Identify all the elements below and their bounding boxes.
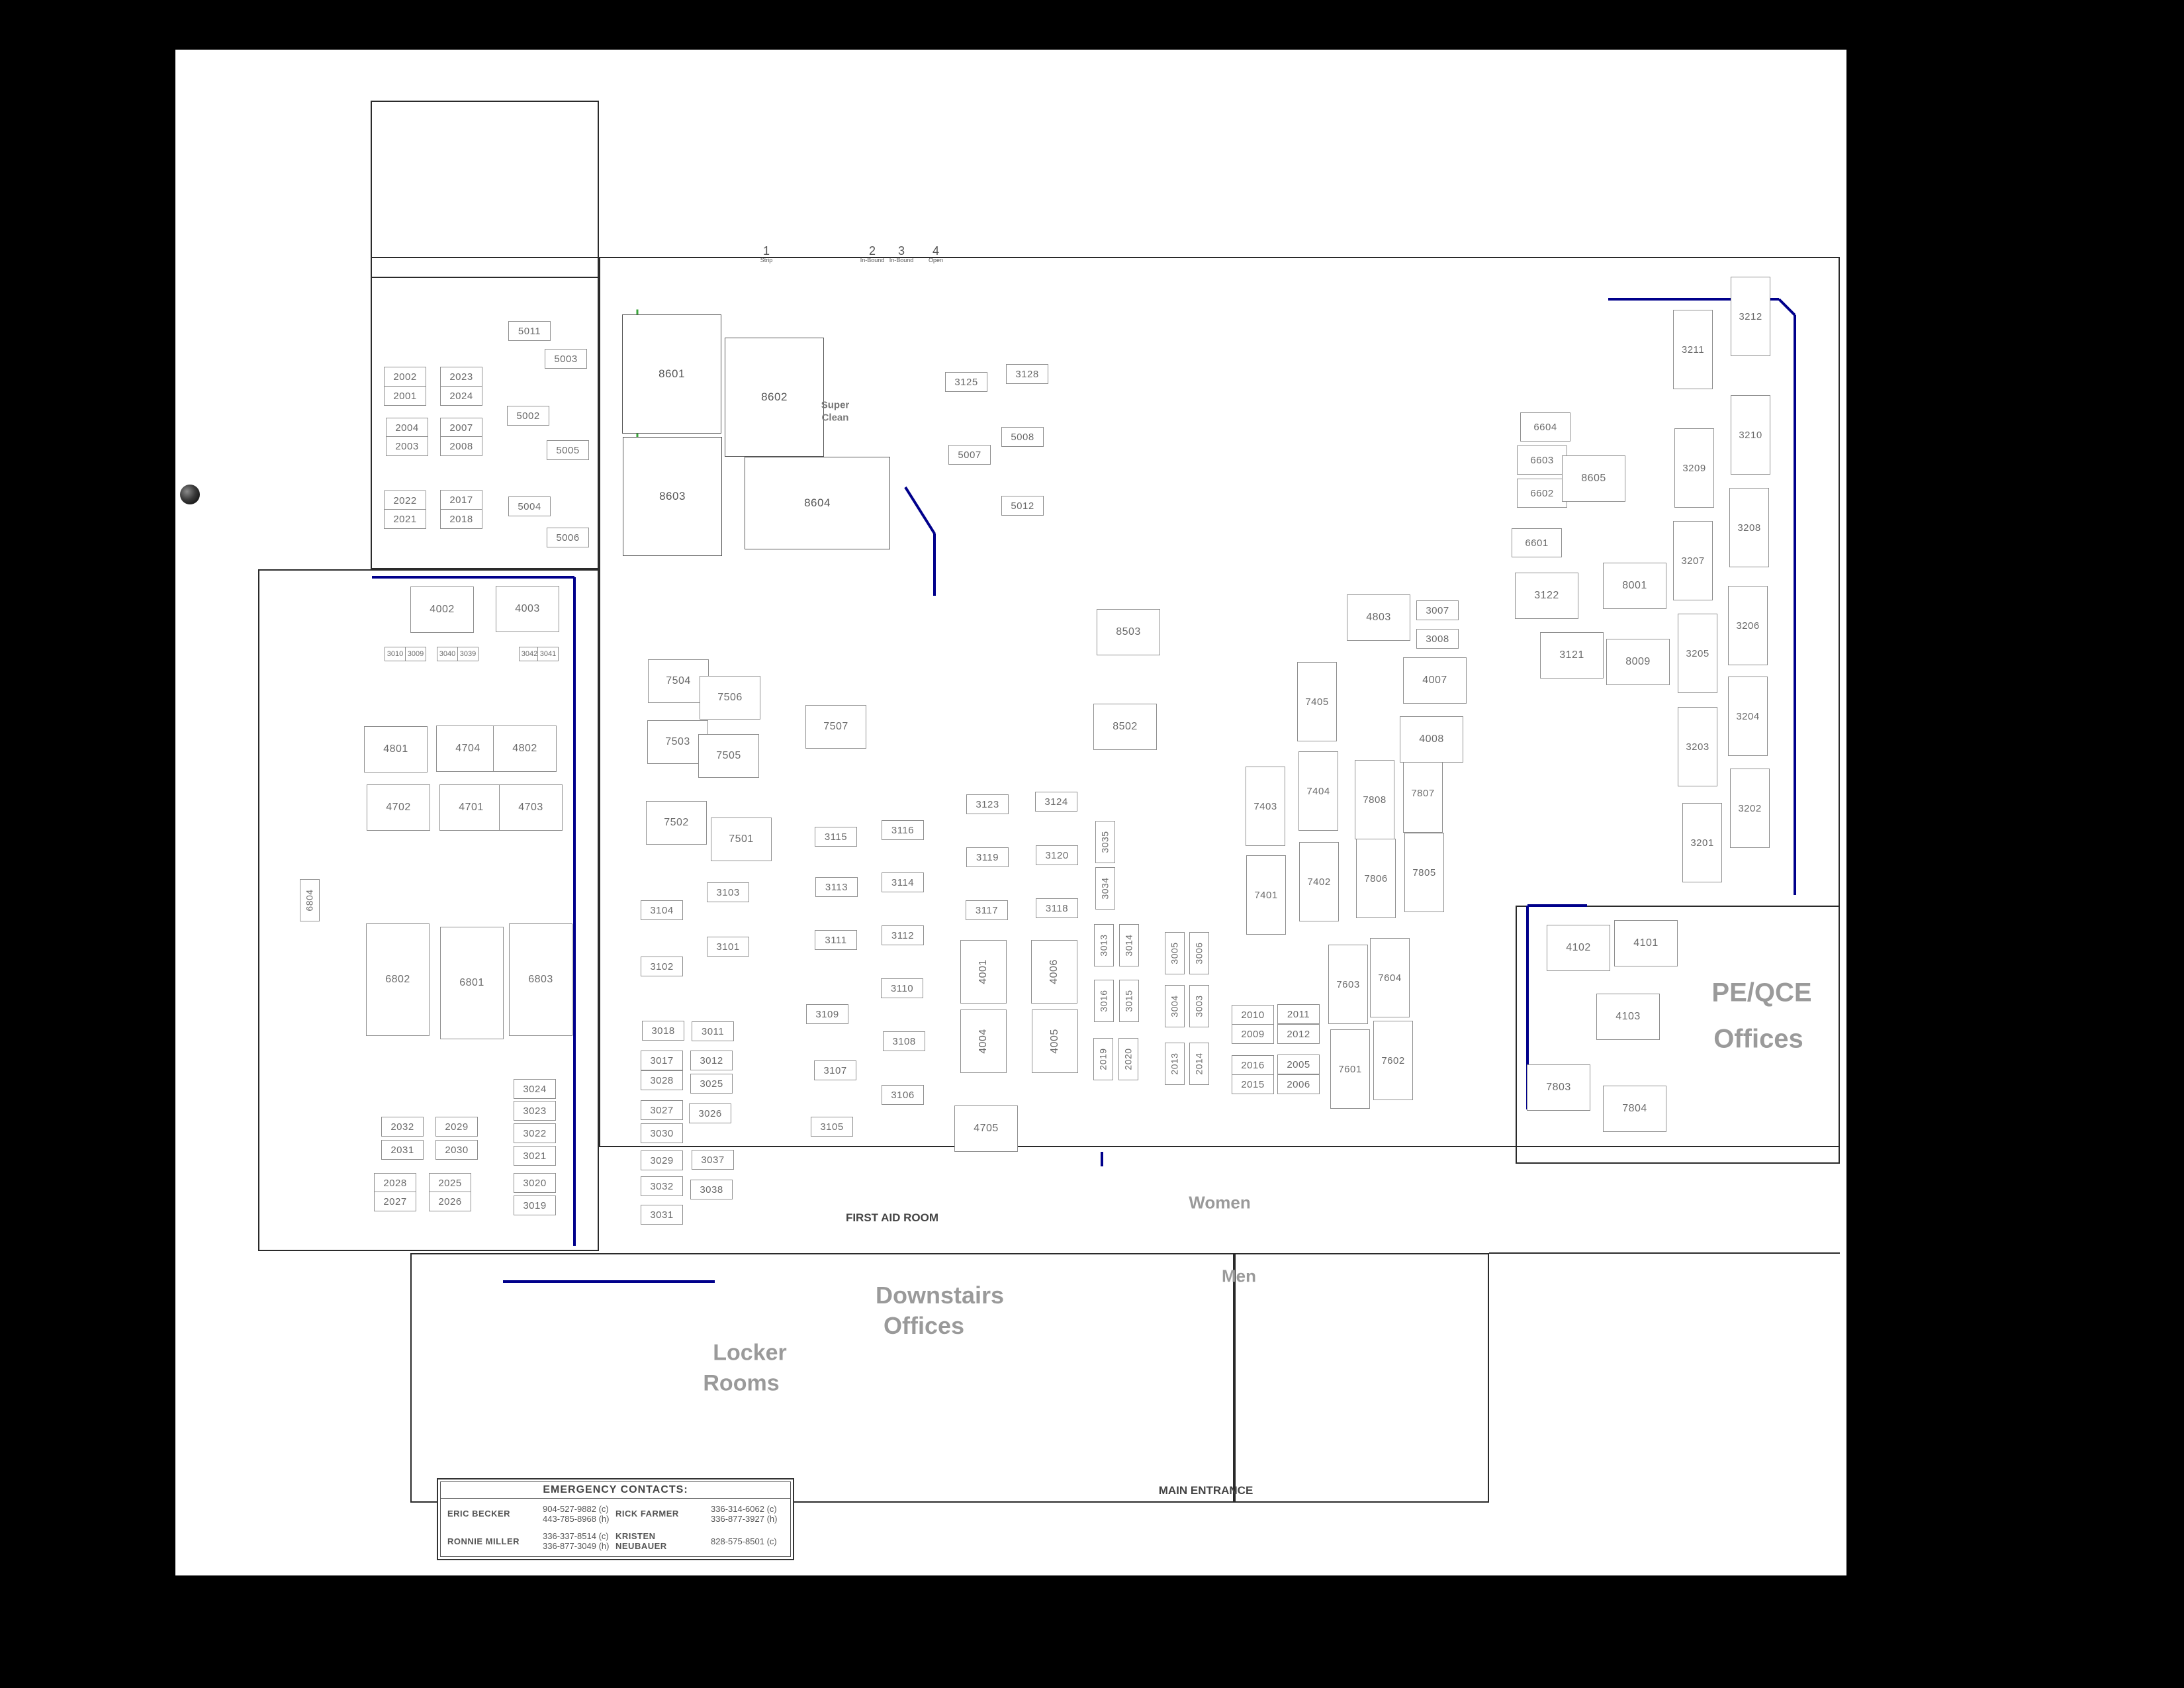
room-number-label: 2004 — [395, 422, 418, 434]
screenshot-root: { "page": { "bg": "#000000", "sheet": {"… — [0, 0, 2184, 1688]
room-3018: 3018 — [642, 1021, 684, 1041]
room-3027: 3027 — [641, 1100, 683, 1120]
wall-segment — [410, 1253, 1234, 1503]
room-2020: 2020 — [1118, 1038, 1138, 1080]
emergency-contacts-grid: ERIC BECKER 904-527-9882 (c) 443-785-896… — [441, 1499, 790, 1556]
room-number-label: 2021 — [393, 514, 416, 525]
emergency-contacts-title: EMERGENCY CONTACTS: — [441, 1482, 790, 1499]
area-label-offices: Offices — [884, 1312, 964, 1340]
room-number-label: 2015 — [1241, 1079, 1264, 1090]
room-number-label: 3012 — [700, 1055, 723, 1066]
dock-label-2: 2In-Bound — [860, 245, 885, 263]
room-number-label: 3121 — [1559, 649, 1584, 661]
room-number-label: 3022 — [523, 1128, 546, 1139]
room-3119: 3119 — [966, 847, 1009, 867]
room-number-label: 3028 — [650, 1075, 673, 1086]
room-3028: 3028 — [641, 1070, 683, 1090]
room-number-label: 7803 — [1546, 1082, 1571, 1094]
room-4008: 4008 — [1400, 716, 1463, 763]
room-number-label: 3128 — [1015, 369, 1038, 380]
room-number-label: 3114 — [891, 877, 914, 888]
room-number-label: 2003 — [395, 441, 418, 452]
room-2018: 2018 — [440, 509, 482, 529]
room-7803: 7803 — [1527, 1064, 1590, 1111]
room-number-label: 3021 — [523, 1150, 546, 1162]
room-3107: 3107 — [814, 1060, 856, 1080]
room-number-label: 2013 — [1169, 1053, 1180, 1074]
room-number-label: 4004 — [978, 1029, 989, 1054]
room-number-label: 3101 — [716, 941, 739, 953]
room-number-label: 4006 — [1048, 959, 1060, 984]
room-number-label: 5004 — [518, 501, 541, 512]
room-number-label: 3027 — [650, 1105, 673, 1116]
room-6604: 6604 — [1520, 412, 1570, 442]
area-label-offices: Offices — [1713, 1025, 1803, 1055]
room-number-label: 3005 — [1169, 942, 1180, 964]
room-number-label: 3034 — [1100, 877, 1111, 899]
room-8604: 8604 — [745, 457, 890, 549]
room-3014: 3014 — [1119, 924, 1139, 966]
room-number-label: 2024 — [449, 391, 473, 402]
room-3209: 3209 — [1674, 428, 1714, 508]
room-3206: 3206 — [1728, 586, 1768, 665]
room-3007: 3007 — [1416, 600, 1459, 620]
room-3012: 3012 — [690, 1051, 733, 1070]
room-number-label: 3206 — [1736, 620, 1759, 632]
blue-accent-line — [1794, 315, 1796, 895]
room-3116: 3116 — [882, 820, 924, 840]
room-number-label: 3208 — [1737, 522, 1760, 534]
room-3106: 3106 — [882, 1085, 924, 1105]
room-3015: 3015 — [1119, 980, 1139, 1022]
room-7602: 7602 — [1373, 1021, 1413, 1100]
room-number-label: 4007 — [1422, 675, 1447, 686]
room-4006: 4006 — [1031, 940, 1077, 1004]
room-number-label: 8503 — [1116, 626, 1141, 638]
room-number-label: 3023 — [523, 1105, 546, 1117]
room-number-label: 7504 — [666, 675, 691, 687]
room-number-label: 2016 — [1241, 1060, 1264, 1071]
room-3023: 3023 — [514, 1101, 556, 1121]
room-3110: 3110 — [881, 978, 923, 998]
room-number-label: 3108 — [892, 1036, 915, 1047]
room-7808: 7808 — [1355, 760, 1394, 839]
room-7805: 7805 — [1404, 833, 1444, 912]
room-2003: 2003 — [386, 436, 428, 456]
room-number-label: 5007 — [958, 449, 981, 461]
room-number-label: 7402 — [1307, 876, 1330, 888]
room-number-label: 2010 — [1241, 1009, 1264, 1021]
room-number-label: 4705 — [974, 1123, 999, 1135]
room-4102: 4102 — [1547, 925, 1610, 971]
room-7401: 7401 — [1246, 855, 1286, 935]
room-number-label: 3119 — [976, 852, 999, 863]
room-number-label: 3120 — [1045, 850, 1068, 861]
blue-accent-line — [1527, 904, 1587, 907]
room-5007: 5007 — [948, 445, 991, 465]
room-6803: 6803 — [509, 923, 572, 1036]
room-6801: 6801 — [440, 927, 504, 1039]
room-2007: 2007 — [440, 418, 482, 438]
room-number-label: 2009 — [1241, 1029, 1264, 1040]
room-number-label: 7404 — [1306, 786, 1330, 797]
room-number-label: 7501 — [729, 833, 754, 845]
wall-segment — [1234, 1253, 1489, 1503]
room-3120: 3120 — [1036, 845, 1078, 865]
room-number-label: 2011 — [1287, 1009, 1310, 1020]
dock-number: 3 — [889, 245, 914, 257]
room-number-label: 7502 — [664, 817, 689, 829]
room-3212: 3212 — [1731, 277, 1770, 356]
room-number-label: 8009 — [1625, 656, 1651, 668]
room-3115: 3115 — [815, 827, 857, 847]
room-number-label: 4803 — [1366, 612, 1391, 624]
room-number-label: 2031 — [390, 1145, 414, 1156]
room-4001: 4001 — [960, 940, 1007, 1004]
room-3037: 3037 — [692, 1150, 734, 1170]
room-number-label: 7807 — [1411, 788, 1434, 799]
area-label-pe-qce: PE/QCE — [1711, 978, 1811, 1008]
room-number-label: 2002 — [393, 371, 416, 383]
room-3211: 3211 — [1673, 310, 1713, 389]
blue-accent-line — [503, 1280, 715, 1283]
room-4002: 4002 — [410, 586, 474, 633]
room-number-label: 2027 — [383, 1196, 406, 1207]
room-number-label: 3104 — [650, 905, 673, 916]
room-number-label: 5003 — [554, 353, 577, 365]
room-number-label: 3042 — [522, 650, 537, 658]
blue-accent-line — [933, 534, 936, 596]
room-number-label: 3029 — [650, 1155, 673, 1166]
room-3041: 3041 — [537, 647, 559, 661]
room-number-label: 2019 — [1098, 1048, 1109, 1070]
room-number-label: 3024 — [523, 1084, 546, 1095]
room-number-label: 8601 — [659, 367, 685, 381]
room-3122: 3122 — [1515, 573, 1578, 619]
room-number-label: 3016 — [1099, 990, 1109, 1011]
room-number-label: 2017 — [449, 494, 473, 506]
room-7804: 7804 — [1603, 1086, 1666, 1132]
room-number-label: 3038 — [700, 1184, 723, 1196]
room-number-label: 3031 — [650, 1209, 673, 1221]
room-5012: 5012 — [1001, 496, 1044, 516]
room-4701: 4701 — [439, 784, 503, 831]
room-3016: 3016 — [1094, 980, 1114, 1022]
dock-word: Open — [929, 257, 943, 263]
room-7405: 7405 — [1297, 662, 1337, 741]
room-number-label: 3125 — [954, 377, 978, 388]
room-7403: 7403 — [1246, 767, 1285, 846]
blue-accent-line — [372, 576, 574, 579]
room-3025: 3025 — [690, 1074, 733, 1094]
dock-number: 1 — [760, 245, 773, 257]
room-number-label: 4005 — [1049, 1029, 1061, 1054]
room-2008: 2008 — [440, 436, 482, 456]
room-6802: 6802 — [366, 923, 430, 1036]
blue-accent-line — [1101, 1152, 1103, 1166]
room-number-label: 7507 — [823, 721, 848, 733]
room-3105: 3105 — [811, 1117, 853, 1137]
room-2023: 2023 — [440, 367, 482, 387]
room-4801: 4801 — [364, 726, 428, 773]
room-2009: 2009 — [1232, 1024, 1274, 1044]
room-number-label: 2014 — [1194, 1053, 1205, 1074]
room-number-label: 5002 — [516, 410, 539, 422]
room-number-label: 3006 — [1194, 942, 1205, 964]
room-number-label: 3003 — [1194, 995, 1205, 1017]
room-3006: 3006 — [1189, 932, 1209, 974]
room-number-label: 5006 — [556, 532, 579, 543]
room-7404: 7404 — [1298, 751, 1338, 831]
room-3103: 3103 — [707, 882, 749, 902]
room-2006: 2006 — [1277, 1074, 1320, 1094]
room-3123: 3123 — [966, 794, 1009, 814]
room-number-label: 5011 — [518, 326, 541, 337]
room-5005: 5005 — [547, 440, 589, 460]
room-3011: 3011 — [692, 1021, 734, 1041]
room-number-label: 3020 — [523, 1178, 546, 1189]
room-number-label: 3035 — [1100, 831, 1111, 853]
room-number-label: 3204 — [1736, 711, 1759, 722]
room-number-label: 3110 — [891, 983, 913, 994]
room-number-label: 4002 — [430, 604, 455, 616]
dock-number: 4 — [929, 245, 943, 257]
area-label-downstairs: Downstairs — [876, 1282, 1004, 1309]
room-number-label: 2005 — [1287, 1059, 1310, 1070]
room-number-label: 8603 — [659, 490, 686, 503]
dock-label-1: 1Strip — [760, 245, 773, 263]
room-number-label: 3106 — [891, 1090, 914, 1101]
room-3035: 3035 — [1095, 821, 1115, 863]
room-number-label: 6602 — [1530, 488, 1553, 499]
emergency-contact: ERIC BECKER 904-527-9882 (c) 443-785-896… — [447, 1504, 615, 1524]
room-number-label: 3010 — [387, 650, 403, 658]
room-number-label: 4003 — [515, 603, 540, 615]
room-number-label: 3210 — [1739, 430, 1762, 441]
room-2021: 2021 — [384, 509, 426, 529]
room-number-label: 2008 — [449, 441, 473, 452]
room-number-label: 3205 — [1686, 648, 1709, 659]
area-label-clean: Clean — [822, 412, 849, 424]
room-4004: 4004 — [960, 1009, 1007, 1073]
room-number-label: 4702 — [386, 802, 411, 814]
room-3125: 3125 — [945, 372, 987, 392]
room-number-label: 3103 — [716, 887, 739, 898]
room-number-label: 4102 — [1566, 942, 1591, 954]
room-number-label: 3013 — [1099, 934, 1109, 956]
room-4802: 4802 — [493, 726, 557, 772]
room-3040: 3040 — [437, 647, 458, 661]
room-number-label: 3008 — [1426, 633, 1449, 645]
room-5004: 5004 — [508, 496, 551, 516]
contact-name: RONNIE MILLER — [447, 1536, 533, 1546]
room-number-label: 7602 — [1381, 1055, 1404, 1066]
room-2002: 2002 — [384, 367, 426, 387]
room-4005: 4005 — [1032, 1009, 1078, 1073]
room-number-label: 3203 — [1686, 741, 1709, 753]
room-number-label: 3015 — [1124, 990, 1134, 1011]
room-number-label: 6803 — [528, 974, 553, 986]
room-number-label: 3105 — [820, 1121, 843, 1133]
room-3117: 3117 — [966, 900, 1008, 920]
room-number-label: 7805 — [1412, 867, 1435, 878]
room-3026: 3026 — [689, 1103, 731, 1123]
room-2029: 2029 — [435, 1117, 478, 1137]
room-2010: 2010 — [1232, 1005, 1274, 1025]
room-7502: 7502 — [646, 801, 707, 845]
room-number-label: 3124 — [1044, 796, 1068, 808]
area-label-rooms: Rooms — [703, 1371, 779, 1397]
room-number-label: 6801 — [459, 977, 484, 989]
room-3021: 3021 — [514, 1146, 556, 1166]
room-number-label: 8502 — [1113, 721, 1138, 733]
room-4702: 4702 — [367, 784, 430, 831]
room-2027: 2027 — [374, 1192, 416, 1211]
room-3038: 3038 — [690, 1180, 733, 1199]
room-number-label: 3017 — [650, 1055, 673, 1066]
area-label-first-aid-room: FIRST AID ROOM — [846, 1211, 938, 1225]
room-3210: 3210 — [1731, 395, 1770, 475]
room-3101: 3101 — [707, 937, 749, 957]
emergency-contacts-panel: EMERGENCY CONTACTS: ERIC BECKER 904-527-… — [437, 1478, 794, 1560]
room-3104: 3104 — [641, 900, 683, 920]
area-label-locker: Locker — [713, 1340, 787, 1366]
room-number-label: 3117 — [976, 905, 998, 916]
room-3022: 3022 — [514, 1123, 556, 1143]
room-number-label: 2026 — [438, 1196, 461, 1207]
room-number-label: 7603 — [1336, 979, 1359, 990]
room-3039: 3039 — [457, 647, 478, 661]
dock-word: Strip — [760, 257, 773, 263]
emergency-contact: RONNIE MILLER 336-337-8514 (c) 336-877-3… — [447, 1531, 615, 1551]
room-2017: 2017 — [440, 490, 482, 510]
room-2013: 2013 — [1165, 1043, 1185, 1085]
room-number-label: 3202 — [1738, 803, 1761, 814]
room-number-label: 3112 — [891, 930, 914, 941]
room-number-label: 3041 — [540, 650, 556, 658]
room-number-label: 7505 — [716, 750, 741, 762]
contact-name: ERIC BECKER — [447, 1509, 533, 1519]
room-number-label: 2023 — [449, 371, 473, 383]
room-number-label: 3025 — [700, 1078, 723, 1090]
room-number-label: 7804 — [1622, 1103, 1647, 1115]
room-3121: 3121 — [1540, 632, 1604, 679]
room-3204: 3204 — [1728, 677, 1768, 756]
room-3124: 3124 — [1035, 792, 1077, 812]
room-2025: 2025 — [429, 1173, 471, 1193]
room-4703: 4703 — [499, 784, 563, 831]
room-2019: 2019 — [1093, 1038, 1113, 1080]
contact-name: RICK FARMER — [615, 1509, 702, 1519]
room-number-label: 8605 — [1581, 473, 1606, 485]
room-3203: 3203 — [1678, 707, 1717, 786]
room-3003: 3003 — [1189, 985, 1209, 1027]
room-3118: 3118 — [1036, 898, 1078, 918]
room-number-label: 2012 — [1287, 1029, 1310, 1040]
room-7806: 7806 — [1356, 839, 1396, 918]
room-3024: 3024 — [514, 1079, 556, 1099]
dock-number: 2 — [860, 245, 885, 257]
room-2016: 2016 — [1232, 1055, 1274, 1075]
room-number-label: 6603 — [1530, 455, 1553, 466]
room-2012: 2012 — [1277, 1024, 1320, 1044]
room-number-label: 7808 — [1363, 794, 1386, 806]
room-number-label: 2030 — [445, 1145, 468, 1156]
emergency-contact: KRISTEN NEUBAUER 828-575-8501 (c) — [615, 1531, 784, 1551]
room-3010: 3010 — [385, 647, 406, 661]
room-number-label: 3039 — [460, 650, 476, 658]
room-6601: 6601 — [1512, 528, 1562, 557]
room-5006: 5006 — [547, 528, 589, 547]
room-number-label: 3007 — [1426, 605, 1449, 616]
room-number-label: 5005 — [556, 445, 579, 456]
room-8502: 8502 — [1093, 704, 1157, 750]
area-label-super: Super — [821, 400, 850, 411]
room-number-label: 3014 — [1124, 934, 1134, 956]
room-number-label: 3118 — [1046, 903, 1068, 914]
room-4103: 4103 — [1596, 994, 1660, 1040]
room-number-label: 3111 — [825, 935, 846, 946]
room-number-label: 4101 — [1633, 937, 1659, 949]
room-number-label: 3004 — [1169, 995, 1180, 1017]
room-3202: 3202 — [1730, 769, 1770, 848]
room-number-label: 3019 — [523, 1200, 546, 1211]
room-8605: 8605 — [1562, 455, 1625, 502]
contact-name: KRISTEN NEUBAUER — [615, 1531, 702, 1551]
dock-word: In-Bound — [860, 257, 885, 263]
room-3205: 3205 — [1678, 614, 1717, 693]
room-3017: 3017 — [641, 1051, 683, 1070]
area-label-women: Women — [1189, 1193, 1250, 1213]
room-2030: 2030 — [435, 1140, 478, 1160]
room-number-label: 3040 — [439, 650, 455, 658]
room-3008: 3008 — [1416, 629, 1459, 649]
room-3034: 3034 — [1095, 867, 1115, 910]
room-3112: 3112 — [882, 925, 924, 945]
room-3009: 3009 — [405, 647, 426, 661]
room-7807: 7807 — [1403, 753, 1443, 833]
room-number-label: 3102 — [650, 961, 673, 972]
room-number-label: 3030 — [650, 1128, 673, 1139]
room-number-label: 2020 — [1123, 1048, 1134, 1070]
room-4003: 4003 — [496, 586, 559, 632]
room-number-label: 3107 — [823, 1065, 846, 1076]
dock-label-4: 4Open — [929, 245, 943, 263]
room-number-label: 6601 — [1525, 538, 1548, 549]
room-8503: 8503 — [1097, 609, 1160, 655]
room-2015: 2015 — [1232, 1074, 1274, 1094]
room-number-label: 2007 — [449, 422, 473, 434]
room-number-label: 6802 — [385, 974, 410, 986]
room-2005: 2005 — [1277, 1055, 1320, 1074]
room-number-label: 3209 — [1682, 463, 1706, 474]
room-3113: 3113 — [815, 877, 858, 897]
room-number-label: 2006 — [1287, 1079, 1310, 1090]
room-number-label: 6804 — [304, 889, 315, 911]
room-3128: 3128 — [1006, 364, 1048, 384]
dock-label-3: 3In-Bound — [889, 245, 914, 263]
room-7402: 7402 — [1299, 842, 1339, 921]
room-3207: 3207 — [1673, 521, 1713, 600]
room-number-label: 3009 — [408, 650, 424, 658]
room-3114: 3114 — [882, 872, 924, 892]
room-number-label: 2022 — [393, 495, 416, 506]
room-number-label: 3037 — [701, 1154, 724, 1166]
room-number-label: 3018 — [651, 1025, 674, 1037]
room-number-label: 3115 — [825, 831, 847, 843]
room-number-label: 4103 — [1615, 1011, 1641, 1023]
room-8602: 8602 — [725, 338, 824, 457]
